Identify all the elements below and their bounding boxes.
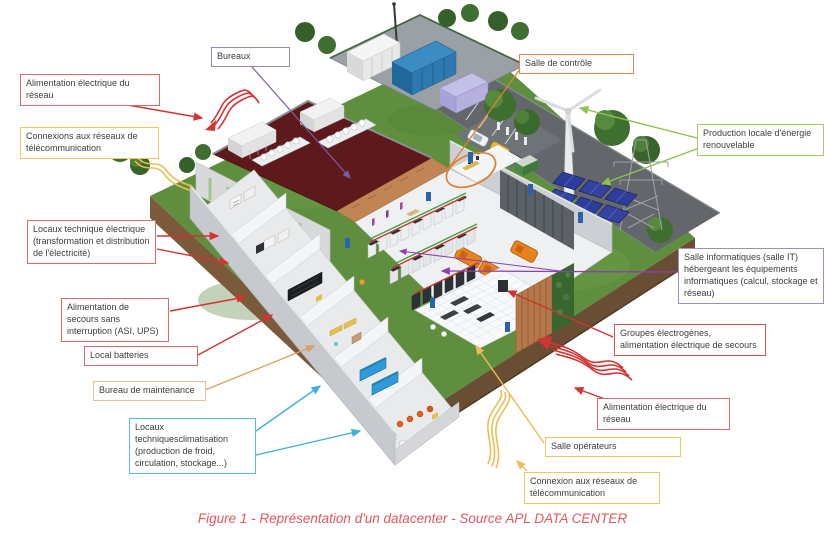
datacenter-figure: Alimentation électrique du réseau Connex… bbox=[0, 0, 825, 537]
power-arrowhead-top-left bbox=[205, 120, 216, 131]
figure-caption: Figure 1 - Représentation d'un datacente… bbox=[0, 511, 825, 526]
callout-salle-informatique: Salle informatiques (salle IT) hébergean… bbox=[678, 248, 824, 304]
telecom-wave-bottom bbox=[488, 390, 510, 468]
line-connexion-bas bbox=[517, 461, 527, 471]
callout-connexion-telecom-bas: Connexion aux réseaux de télécommunicati… bbox=[524, 472, 660, 504]
callout-bureaux: Bureaux bbox=[211, 47, 290, 67]
power-arrow-top-left bbox=[211, 90, 259, 129]
callout-connexions-telecom-haut: Connexions aux réseaux de télécommunicat… bbox=[20, 127, 159, 159]
callout-local-batteries: Local batteries bbox=[84, 346, 198, 366]
line-climatisation-1 bbox=[256, 386, 320, 431]
callout-locaux-climatisation: Locaux techniquesclimatisation (producti… bbox=[129, 418, 256, 474]
callout-locaux-technique-electrique: Locaux technique électrique (transformat… bbox=[27, 220, 156, 264]
line-maintenance bbox=[205, 346, 314, 390]
callout-groupes-electrogenes: Groupes électrogènes, alimentation élect… bbox=[614, 324, 766, 356]
line-batteries bbox=[198, 315, 272, 355]
server-cabinet bbox=[498, 280, 508, 292]
tree bbox=[594, 110, 630, 146]
tree bbox=[484, 89, 516, 121]
callout-alimentation-electrique-reseau-bas: Alimentation électrique du réseau bbox=[597, 398, 730, 430]
tree bbox=[514, 109, 540, 135]
line-climatisation-2 bbox=[256, 431, 360, 455]
callout-production-locale-energie: Production locale d'énergie renouvelable bbox=[697, 124, 824, 156]
callout-salle-operateurs: Salle opérateurs bbox=[545, 437, 681, 457]
line-alimentation-haut bbox=[122, 104, 202, 118]
green-wall bbox=[552, 263, 574, 333]
callout-bureau-maintenance: Bureau de maintenance bbox=[93, 381, 206, 401]
callout-alimentation-electrique-reseau-haut: Alimentation électrique du réseau bbox=[20, 74, 160, 106]
callout-alimentation-secours: Alimentation de secours sans interruptio… bbox=[61, 298, 169, 342]
tree bbox=[295, 22, 336, 54]
technician-figure bbox=[359, 279, 364, 284]
callout-salle-de-controle: Salle de contrôle bbox=[519, 54, 634, 74]
